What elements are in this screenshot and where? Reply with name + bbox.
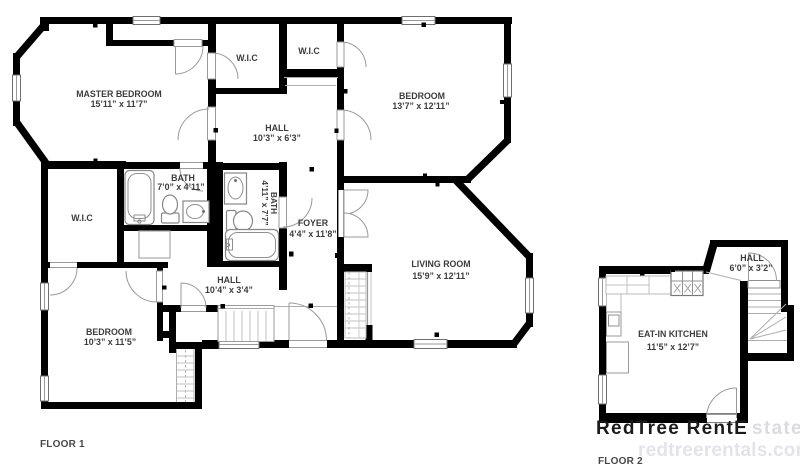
svg-text:LIVING ROOM: LIVING ROOM (411, 259, 470, 269)
svg-text:W.I.C: W.I.C (298, 46, 320, 56)
svg-text:10’4” x 3’4”: 10’4” x 3’4” (205, 285, 253, 295)
svg-text:W.I.C: W.I.C (236, 53, 258, 63)
svg-text:BEDROOM: BEDROOM (86, 327, 132, 337)
svg-text:15’11” x 11’7”: 15’11” x 11’7” (91, 99, 148, 109)
svg-text:10’3” x 6’3”: 10’3” x 6’3” (253, 133, 301, 143)
svg-text:4’11” x 7’7”: 4’11” x 7’7” (260, 180, 270, 225)
svg-text:4’4” x 11’8”: 4’4” x 11’8” (289, 229, 336, 239)
svg-text:6’0” x 3’2”: 6’0” x 3’2” (729, 263, 772, 273)
svg-text:HALL: HALL (265, 123, 289, 133)
svg-text:7’0” x 4’11”: 7’0” x 4’11” (157, 182, 204, 192)
svg-text:FOYER: FOYER (298, 218, 329, 228)
svg-text:BEDROOM: BEDROOM (399, 91, 445, 101)
svg-text:FLOOR 1: FLOOR 1 (40, 439, 85, 450)
svg-text:13’7” x 12’11”: 13’7” x 12’11” (392, 101, 449, 111)
svg-text:15’9” x 12’11”: 15’9” x 12’11” (412, 271, 469, 281)
svg-text:RedTree RentE: RedTree RentE (596, 418, 748, 439)
svg-text:MASTER BEDROOM: MASTER BEDROOM (76, 89, 162, 99)
svg-text:HALL: HALL (217, 275, 241, 285)
svg-text:FLOOR 2: FLOOR 2 (598, 456, 643, 467)
svg-text:state: state (752, 418, 800, 439)
svg-text:HALL: HALL (740, 253, 764, 263)
svg-text:W.I.C: W.I.C (71, 213, 93, 223)
svg-text:EAT-IN KITCHEN: EAT-IN KITCHEN (638, 329, 708, 339)
svg-text:11’5” x 12’7”: 11’5” x 12’7” (647, 342, 699, 352)
svg-text:10’3” x 11’5”: 10’3” x 11’5” (84, 337, 136, 347)
svg-text:redtreerentals.com: redtreerentals.com (638, 440, 800, 461)
